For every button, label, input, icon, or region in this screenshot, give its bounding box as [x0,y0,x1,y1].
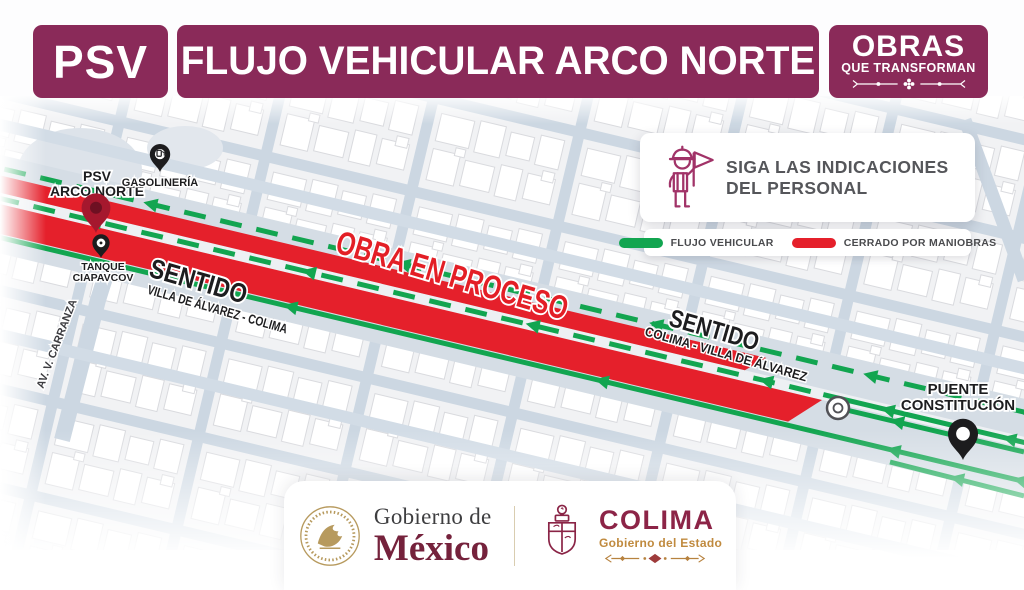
footer-logos: Gobierno de México COLIMA Gobierno del E… [284,481,736,590]
left-fade [0,96,46,556]
colima-text: COLIMA [599,507,714,534]
instruction-text: SIGA LAS INDICACIONES DEL PERSONAL [726,157,949,199]
roundabout-icon [827,397,849,419]
instruction-line1: SIGA LAS INDICACIONES [726,157,949,178]
psv-badge-label: PSV [53,35,148,89]
gobierno-mexico-wordmark: Gobierno de México [374,505,492,567]
instruction-card: SIGA LAS INDICACIONES DEL PERSONAL [640,133,975,222]
svg-text:CONSTITUCIÓN: CONSTITUCIÓN [901,396,1015,414]
obras-badge: OBRAS QUE TRANSFORMAN [829,25,988,98]
mexico-text: México [374,530,492,567]
svg-text:GASOLINERÍA: GASOLINERÍA [122,176,198,189]
flow-legend-label: FLUJO VEHICULAR [671,237,774,249]
flow-legend-swatch [619,238,663,248]
obras-badge-line1: OBRAS [852,33,965,61]
legend: FLUJO VEHICULAR CERRADO POR MANIOBRAS [644,229,971,256]
colima-flourish-icon [599,552,711,565]
svg-text:PSV: PSV [83,168,112,184]
worker-flag-icon [656,142,720,214]
closed-legend-label: CERRADO POR MANIOBRAS [844,237,997,249]
obras-flourish-icon [847,77,971,91]
colima-wordmark: COLIMA Gobierno del Estado [599,507,722,565]
gobierno-de-text: Gobierno de [374,505,492,528]
svg-text:PUENTE: PUENTE [928,381,989,398]
page-title: FLUJO VEHICULAR ARCO NORTE [177,25,819,98]
svg-text:CIAPAVCOV: CIAPAVCOV [73,272,134,284]
colima-subtitle-text: Gobierno del Estado [599,537,722,549]
header-bar: PSV FLUJO VEHICULAR ARCO NORTE OBRAS QUE… [0,0,1024,110]
closed-legend-swatch [792,238,836,248]
psv-badge: PSV [33,25,168,98]
instruction-line2: DEL PERSONAL [726,178,949,199]
footer-divider [514,506,516,566]
obras-badge-line2: QUE TRANSFORMAN [841,61,975,75]
page-title-text: FLUJO VEHICULAR ARCO NORTE [181,39,815,84]
mexico-seal-icon [298,504,362,568]
colima-shield-icon [537,504,587,568]
